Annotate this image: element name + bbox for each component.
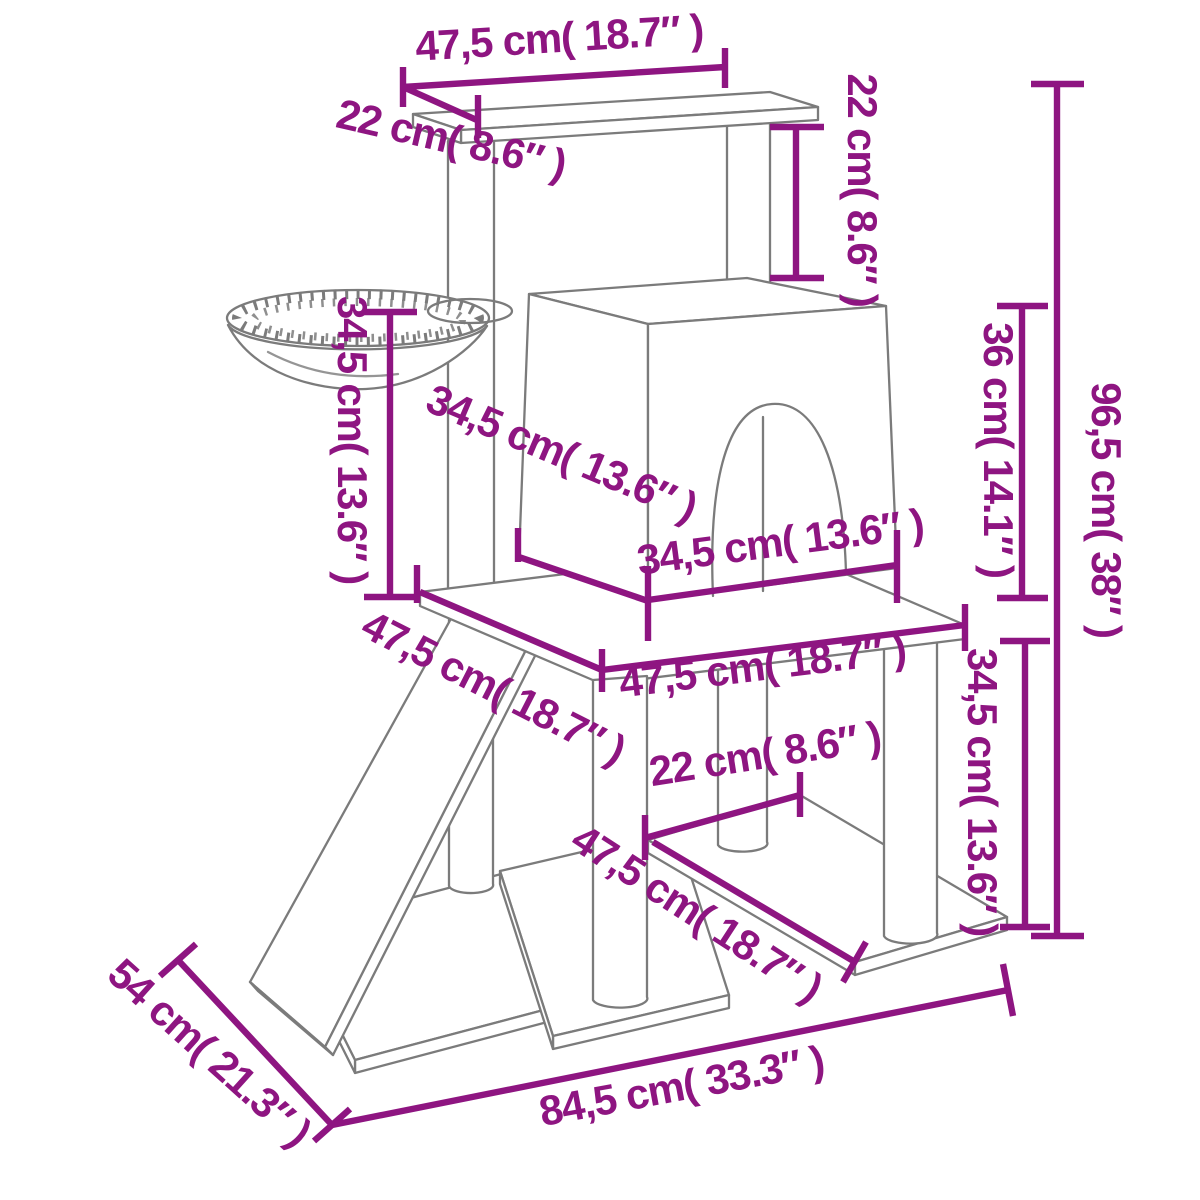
label-condo-height: 36 cm( 14.1″ ) — [975, 322, 1022, 577]
shelf-post-right — [884, 631, 937, 944]
label-top-platform-width: 47,5 cm( 18.7″ ) — [414, 5, 704, 70]
left-post — [448, 138, 494, 602]
dim-top-post-height-line — [770, 127, 824, 278]
right-top-post — [727, 121, 770, 286]
label-total-height: 96,5 cm( 38″ ) — [1083, 382, 1130, 637]
label-lower-level-height: 34,5 cm( 13.6″ ) — [959, 648, 1006, 936]
dimension-diagram: 47,5 cm( 18.7″ ) 22 cm( 8.6″ ) 22 cm( 8.… — [0, 0, 1200, 1200]
label-base-width: 84,5 cm( 33.3″ ) — [535, 1036, 827, 1135]
label-basket-post-height: 34,5 cm( 13.6″ ) — [329, 296, 376, 584]
dim-lower-level-height-line — [1000, 641, 1050, 927]
dim-total-height-line — [1031, 84, 1084, 936]
label-top-post-height: 22 cm( 8.6″ ) — [839, 73, 886, 306]
cat-tree-diagram-svg: 47,5 cm( 18.7″ ) 22 cm( 8.6″ ) 22 cm( 8.… — [0, 0, 1200, 1200]
